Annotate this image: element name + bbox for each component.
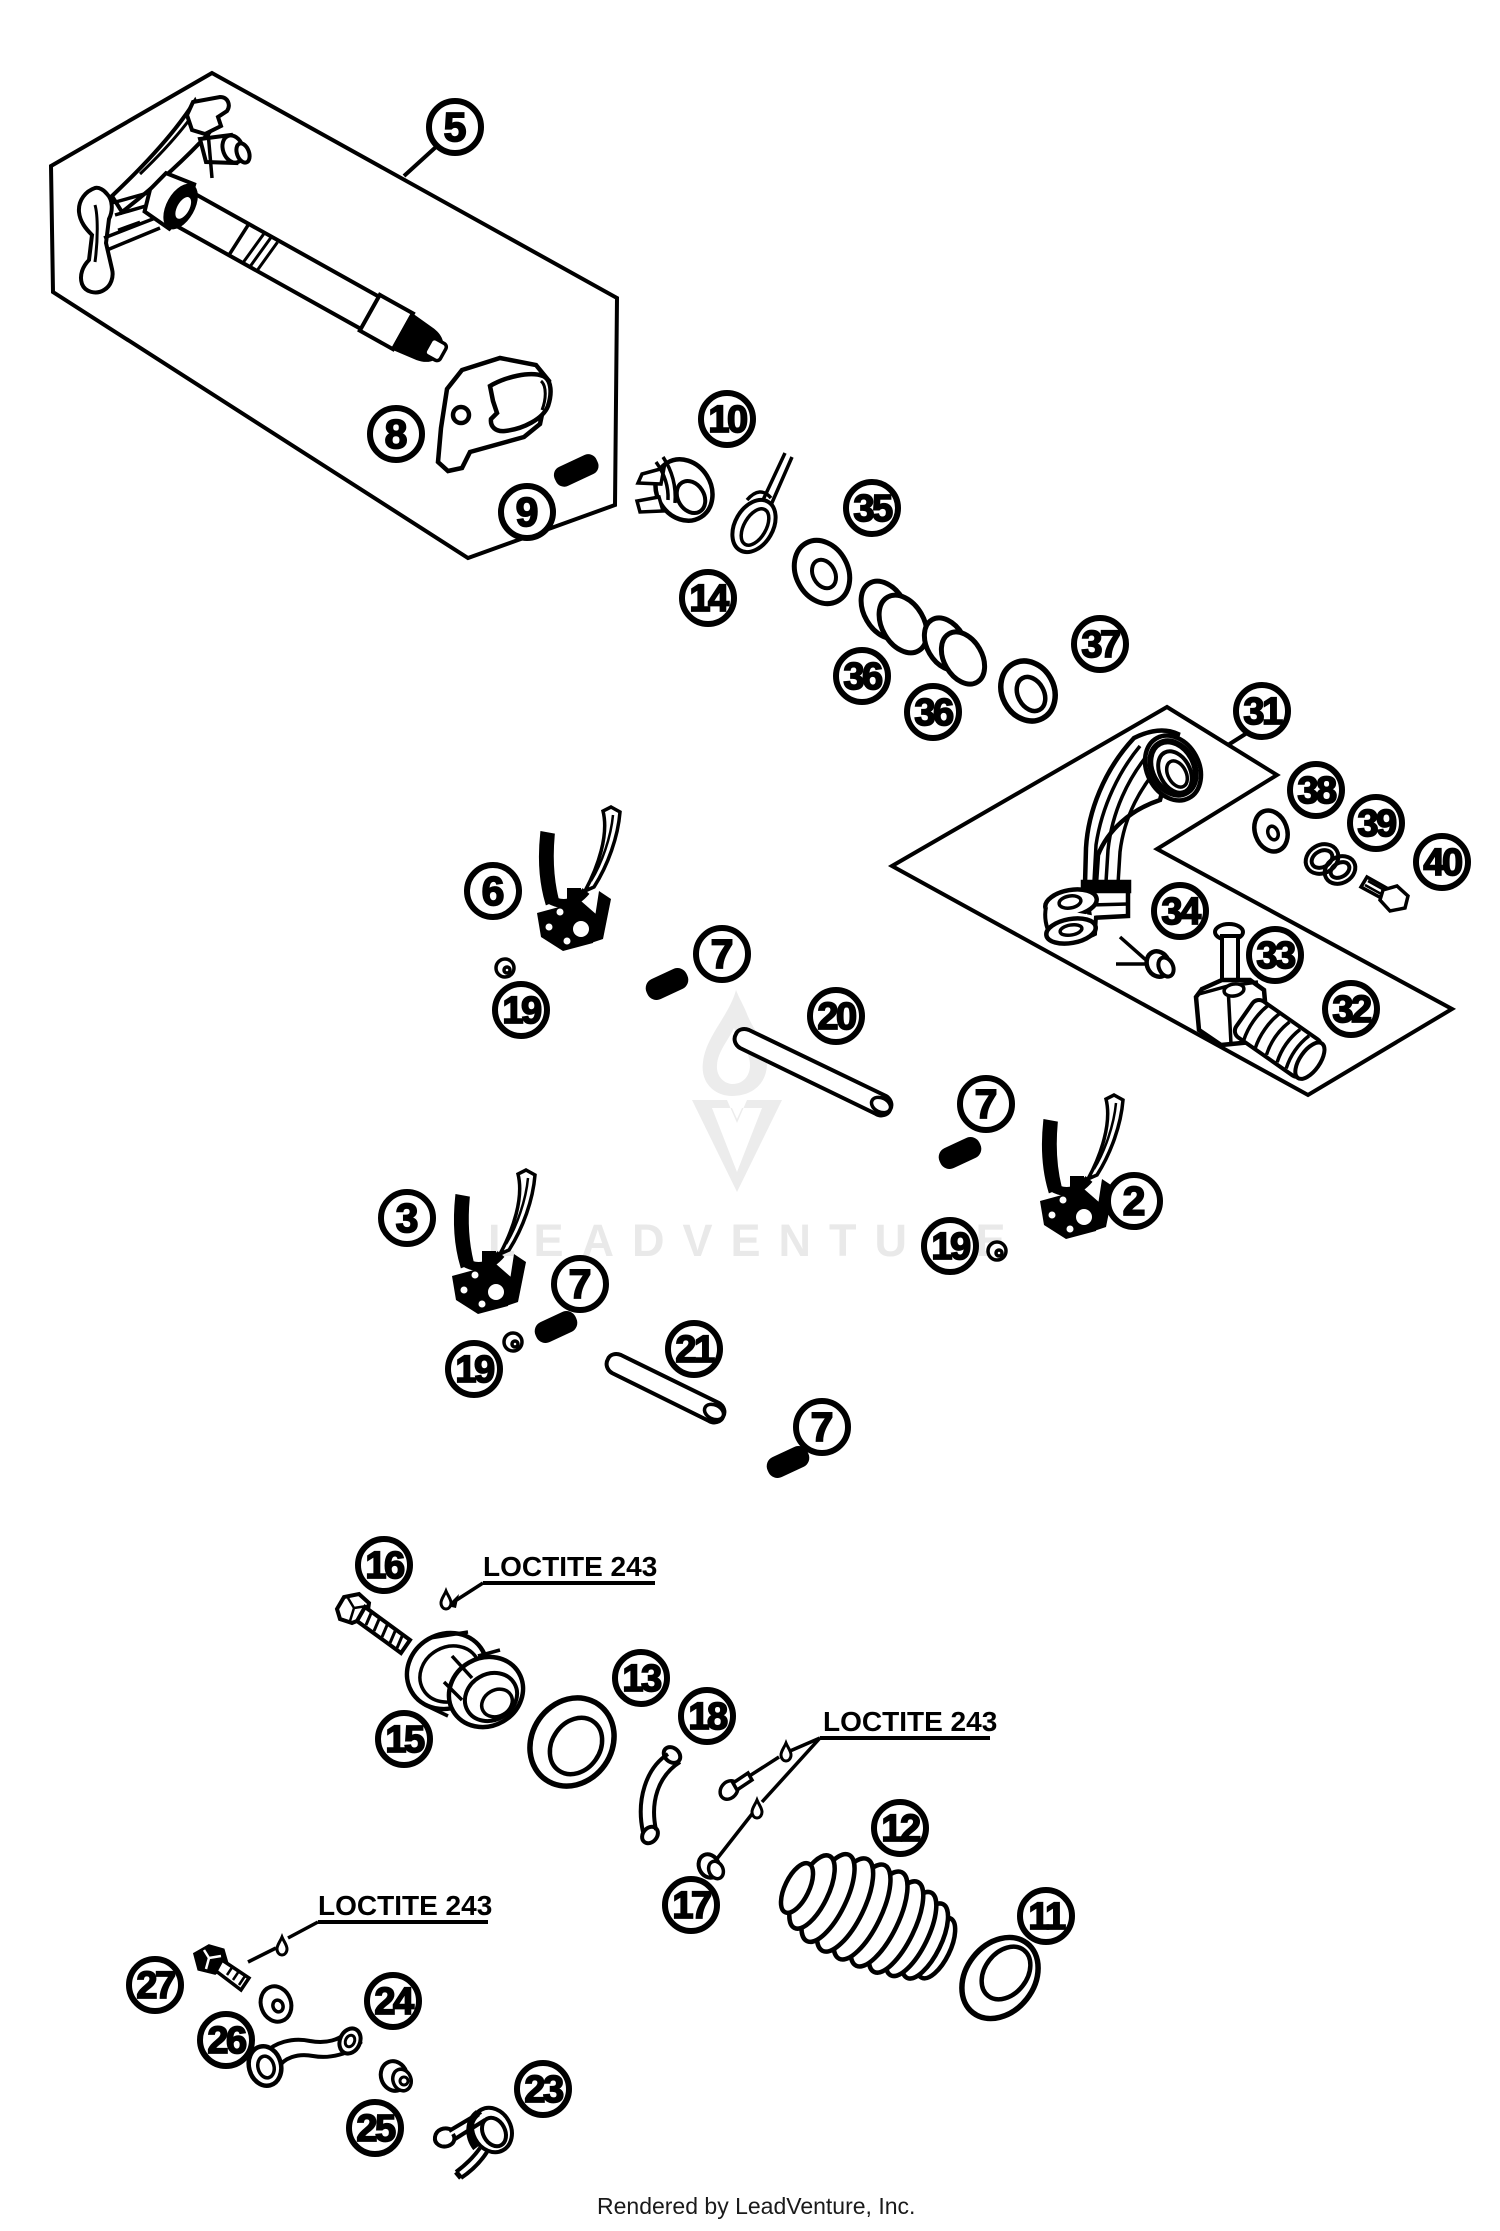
svg-text:32: 32 — [1332, 989, 1371, 1031]
svg-text:2: 2 — [1123, 1178, 1146, 1224]
svg-text:18: 18 — [688, 1696, 727, 1738]
svg-text:35: 35 — [853, 488, 893, 530]
svg-text:40: 40 — [1423, 842, 1462, 884]
svg-text:12: 12 — [881, 1808, 920, 1850]
svg-text:7: 7 — [711, 931, 734, 977]
svg-text:19: 19 — [455, 1349, 494, 1391]
svg-text:13: 13 — [622, 1658, 661, 1700]
svg-text:10: 10 — [708, 399, 747, 441]
svg-text:Rendered by LeadVenture, Inc.: Rendered by LeadVenture, Inc. — [597, 2193, 915, 2219]
svg-text:7: 7 — [811, 1404, 834, 1450]
svg-text:26: 26 — [207, 2020, 246, 2062]
svg-text:36: 36 — [914, 692, 953, 734]
svg-text:9: 9 — [516, 489, 539, 535]
svg-text:LOCTITE 243: LOCTITE 243 — [483, 1551, 657, 1582]
svg-text:17: 17 — [672, 1885, 711, 1927]
svg-text:31: 31 — [1243, 691, 1283, 733]
svg-text:36: 36 — [843, 656, 882, 698]
svg-text:15: 15 — [385, 1719, 425, 1761]
svg-text:5: 5 — [444, 104, 467, 150]
svg-text:34: 34 — [1161, 891, 1201, 933]
svg-text:27: 27 — [136, 1965, 175, 2007]
svg-text:6: 6 — [482, 868, 505, 914]
svg-text:LOCTITE 243: LOCTITE 243 — [318, 1890, 492, 1921]
svg-text:19: 19 — [502, 990, 541, 1032]
svg-text:11: 11 — [1028, 1896, 1066, 1938]
svg-text:25: 25 — [356, 2108, 396, 2150]
svg-text:24: 24 — [374, 1981, 414, 2023]
svg-text:21: 21 — [675, 1329, 715, 1371]
svg-text:38: 38 — [1297, 770, 1336, 812]
svg-text:7: 7 — [569, 1261, 592, 1307]
svg-text:37: 37 — [1081, 624, 1120, 666]
svg-text:14: 14 — [689, 578, 729, 620]
svg-text:20: 20 — [817, 996, 856, 1038]
svg-text:7: 7 — [975, 1081, 998, 1127]
svg-text:23: 23 — [524, 2069, 563, 2111]
svg-text:33: 33 — [1256, 935, 1295, 977]
svg-text:16: 16 — [365, 1545, 404, 1587]
svg-text:LOCTITE 243: LOCTITE 243 — [823, 1706, 997, 1737]
svg-text:19: 19 — [931, 1226, 970, 1268]
svg-text:39: 39 — [1357, 803, 1396, 845]
svg-text:3: 3 — [396, 1195, 419, 1241]
svg-text:8: 8 — [385, 411, 408, 457]
